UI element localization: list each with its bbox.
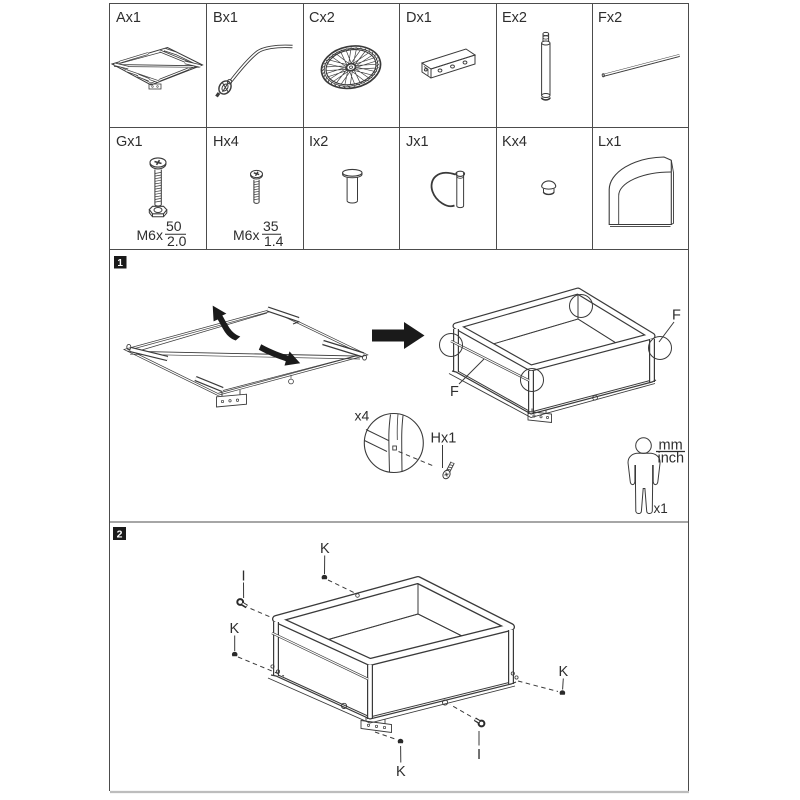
svg-text:50: 50 bbox=[166, 218, 182, 234]
svg-text:Kx4: Kx4 bbox=[502, 134, 527, 150]
svg-text:35: 35 bbox=[263, 218, 279, 234]
svg-text:1.4: 1.4 bbox=[264, 233, 284, 249]
svg-text:M6x: M6x bbox=[137, 227, 163, 243]
svg-text:2.0: 2.0 bbox=[167, 233, 187, 249]
svg-text:F: F bbox=[450, 384, 459, 400]
svg-text:K: K bbox=[559, 664, 569, 680]
svg-text:F: F bbox=[672, 308, 681, 324]
svg-text:Cx2: Cx2 bbox=[309, 10, 335, 26]
svg-text:Hx1: Hx1 bbox=[431, 431, 457, 447]
svg-text:Dx1: Dx1 bbox=[406, 10, 432, 26]
svg-text:Fx2: Fx2 bbox=[598, 10, 622, 26]
svg-text:1: 1 bbox=[117, 258, 123, 269]
svg-text:K: K bbox=[230, 621, 240, 637]
svg-text:K: K bbox=[396, 764, 406, 780]
svg-text:2: 2 bbox=[117, 529, 123, 541]
svg-text:Ex2: Ex2 bbox=[502, 10, 527, 26]
svg-text:Jx1: Jx1 bbox=[406, 134, 429, 150]
svg-text:I: I bbox=[477, 747, 481, 763]
svg-text:Ix2: Ix2 bbox=[309, 134, 328, 150]
svg-text:inch: inch bbox=[658, 451, 685, 467]
svg-text:x1: x1 bbox=[654, 501, 668, 516]
svg-text:M6x: M6x bbox=[233, 227, 259, 243]
svg-text:K: K bbox=[320, 541, 330, 557]
svg-text:Gx1: Gx1 bbox=[116, 134, 143, 150]
svg-text:Ax1: Ax1 bbox=[116, 10, 141, 26]
svg-text:Lx1: Lx1 bbox=[598, 134, 621, 150]
svg-text:x4: x4 bbox=[355, 408, 370, 424]
svg-text:Bx1: Bx1 bbox=[213, 10, 238, 26]
svg-text:I: I bbox=[242, 569, 246, 585]
svg-text:Hx4: Hx4 bbox=[213, 134, 239, 150]
